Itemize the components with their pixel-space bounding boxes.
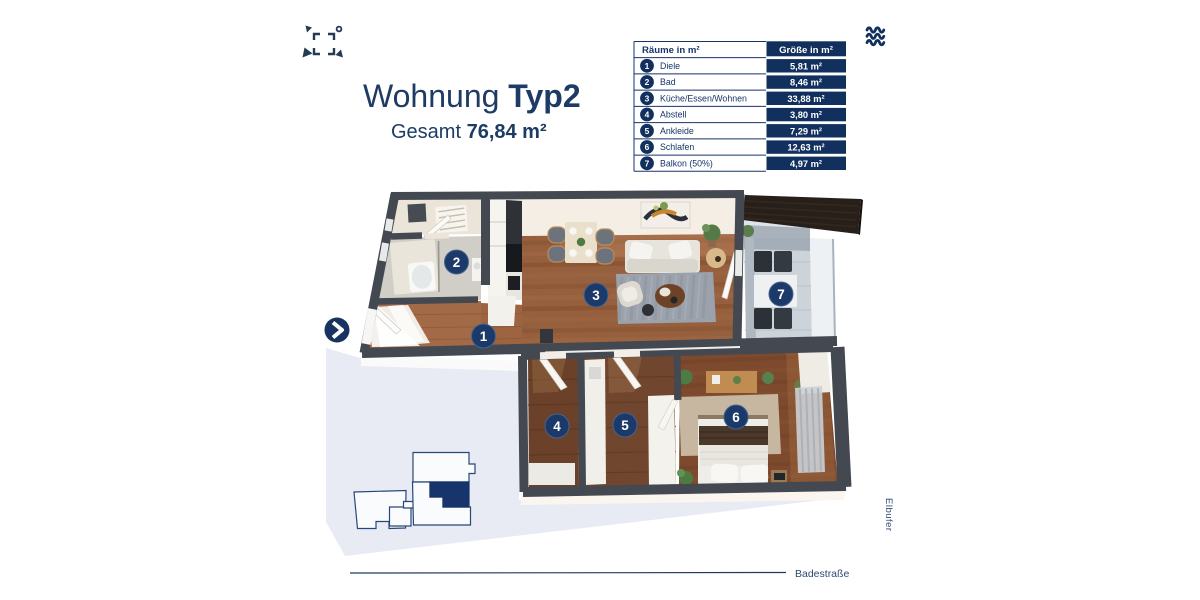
svg-text:12,63 m²: 12,63 m² bbox=[787, 143, 824, 153]
svg-text:33,88 m²: 33,88 m² bbox=[787, 94, 824, 104]
svg-text:8,46 m²: 8,46 m² bbox=[790, 78, 822, 88]
svg-text:Elbufer: Elbufer bbox=[883, 498, 894, 532]
svg-text:Diele: Diele bbox=[660, 61, 680, 71]
svg-text:1: 1 bbox=[645, 61, 650, 71]
svg-text:3: 3 bbox=[592, 288, 600, 303]
svg-text:5,81 m²: 5,81 m² bbox=[790, 61, 822, 71]
svg-text:4,97 m²: 4,97 m² bbox=[790, 159, 822, 169]
svg-text:2: 2 bbox=[453, 255, 461, 270]
svg-text:6: 6 bbox=[645, 142, 650, 152]
svg-text:Gesamt 76,84 m²: Gesamt 76,84 m² bbox=[391, 121, 547, 143]
svg-text:Räume in m²: Räume in m² bbox=[642, 45, 700, 56]
svg-text:Küche/Essen/Wohnen: Küche/Essen/Wohnen bbox=[660, 93, 747, 103]
svg-text:5: 5 bbox=[621, 418, 629, 433]
svg-text:7: 7 bbox=[777, 287, 785, 302]
svg-text:Balkon (50%): Balkon (50%) bbox=[660, 158, 713, 168]
svg-text:Wohnung Typ2: Wohnung Typ2 bbox=[363, 78, 581, 114]
svg-text:5: 5 bbox=[645, 126, 650, 136]
svg-text:3: 3 bbox=[645, 93, 650, 103]
svg-text:Schlafen: Schlafen bbox=[660, 142, 694, 152]
svg-text:7: 7 bbox=[645, 158, 650, 168]
svg-text:Größe in m²: Größe in m² bbox=[779, 45, 833, 56]
svg-text:7,29 m²: 7,29 m² bbox=[790, 126, 822, 136]
svg-text:Ankleide: Ankleide bbox=[660, 126, 694, 136]
svg-text:1: 1 bbox=[480, 329, 488, 344]
svg-text:2: 2 bbox=[645, 77, 650, 87]
svg-text:4: 4 bbox=[645, 110, 650, 120]
svg-text:3,80 m²: 3,80 m² bbox=[790, 110, 822, 120]
svg-text:Abstell: Abstell bbox=[660, 110, 686, 120]
svg-text:6: 6 bbox=[732, 410, 740, 425]
svg-text:Badestraße: Badestraße bbox=[795, 568, 849, 580]
svg-text:Bad: Bad bbox=[660, 77, 676, 87]
svg-text:4: 4 bbox=[553, 419, 561, 434]
